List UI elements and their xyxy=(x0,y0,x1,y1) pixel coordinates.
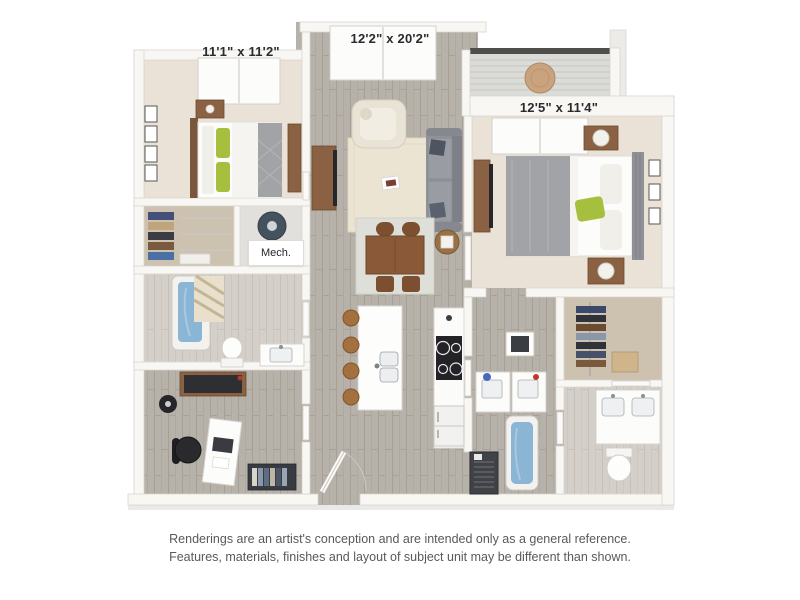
sofa xyxy=(426,128,462,232)
bedroom2-lamp-1 xyxy=(593,130,609,146)
bath1-toilet-tank xyxy=(221,358,243,367)
bedroom1-green-pillow-1 xyxy=(216,128,230,158)
wall-bedroom2-bottom-b xyxy=(526,288,674,297)
office-bookshelf xyxy=(248,464,296,490)
bath1-toilet xyxy=(222,337,242,359)
closet2-hanging-clothes xyxy=(576,306,606,367)
coffee-table-decor xyxy=(381,176,400,190)
bedroom1-green-pillow-2 xyxy=(216,162,230,192)
bath3-sink-1 xyxy=(602,398,624,416)
bedroom1-duvet xyxy=(232,123,258,197)
disclaimer: Renderings are an artist's conception an… xyxy=(0,531,800,566)
island-faucet xyxy=(375,364,380,369)
bedroom2-lamp-2 xyxy=(598,263,614,279)
bedroom1-door xyxy=(303,172,309,200)
wall-bedroom2-bottom-a xyxy=(464,288,486,297)
wall-kitchen-a xyxy=(464,297,472,356)
wall-hall-left-c xyxy=(302,442,310,494)
bath3-faucet-1 xyxy=(611,394,615,398)
bath2-red-bottle xyxy=(533,374,539,380)
bath1-faucet xyxy=(279,345,283,349)
bedroom-1-dimensions-label: 11'1" x 11'2" xyxy=(156,44,326,60)
closet2-door xyxy=(612,381,650,386)
bedroom2-tv xyxy=(489,164,493,228)
dining-chair-3 xyxy=(376,276,394,292)
wall-kitchen-b xyxy=(464,398,472,452)
closet1-bin xyxy=(180,254,210,264)
television xyxy=(333,150,337,206)
bath2-sink-2 xyxy=(518,380,538,398)
bath1-sink xyxy=(270,348,292,362)
armchair-pillow xyxy=(360,108,372,120)
floor-plan-rendering xyxy=(0,0,800,600)
water-heater-cap xyxy=(267,221,277,231)
laundry-detergent xyxy=(474,454,482,460)
office-papers xyxy=(212,457,229,469)
wall-closet2-bath3-b xyxy=(650,380,662,387)
dining-chair-1 xyxy=(376,222,394,236)
tv-console xyxy=(312,146,336,210)
bedroom2-bed xyxy=(506,152,644,260)
closet1-hanging-clothes xyxy=(148,212,174,260)
bedroom1-bed-headboard xyxy=(190,118,198,198)
office-laptop xyxy=(212,437,234,453)
bath1-door xyxy=(303,302,309,336)
wall-right-outer xyxy=(662,96,674,505)
office-turntable-center xyxy=(165,401,171,407)
wall-hall-closet2-a xyxy=(556,297,564,410)
sofa-backrest xyxy=(452,136,462,222)
bedroom2-blanket xyxy=(506,156,570,256)
sofa-pillow-2 xyxy=(429,202,446,219)
bedroom2-media-console xyxy=(474,160,490,232)
office-console-top xyxy=(184,375,242,393)
bath3-sink-2 xyxy=(632,398,654,416)
bath3-door xyxy=(557,412,563,444)
bath3-faucet-2 xyxy=(641,394,645,398)
dining-chair-4 xyxy=(402,276,420,292)
office-door xyxy=(303,406,309,440)
mech-room xyxy=(258,212,286,240)
bedroom1-white-pillows xyxy=(202,126,214,194)
wall-left-outer xyxy=(134,50,144,505)
office-console-decor xyxy=(238,376,243,381)
office-chair xyxy=(175,437,201,463)
island-sink-basin-2 xyxy=(380,368,398,382)
refrigerator xyxy=(434,406,464,446)
balcony-right-wall xyxy=(610,48,620,100)
bedroom2-door xyxy=(465,236,471,280)
bath2-cabinet-door xyxy=(511,336,529,352)
bath2-door xyxy=(465,360,471,396)
living-room-dimensions-label: 12'2" x 20'2" xyxy=(305,31,475,47)
balcony-left-wall xyxy=(462,50,470,116)
bedroom-2-dimensions-label: 12'5" x 11'4" xyxy=(474,100,644,116)
bedroom2-white-pillow-1 xyxy=(600,164,622,204)
bedroom2-headboard xyxy=(632,152,644,260)
mech-room-label: Mech. xyxy=(248,240,304,266)
bedroom1-lamp xyxy=(206,105,214,113)
bedroom1-dresser xyxy=(288,124,301,192)
side-table-tray xyxy=(441,236,453,248)
armchair xyxy=(352,100,406,148)
bedroom1-bed xyxy=(190,118,282,198)
bedroom2-wall-art xyxy=(649,160,660,224)
closet2-storage-box xyxy=(612,352,638,372)
sofa-pillow-1 xyxy=(429,139,446,156)
disclaimer-line-2: Features, materials, finishes and layout… xyxy=(0,549,800,567)
disclaimer-line-1: Renderings are an artist's conception an… xyxy=(0,531,800,549)
wall-hall-closet2-b xyxy=(556,446,564,494)
bath3-toilet xyxy=(607,455,631,481)
wall-bedroom1-bottom xyxy=(134,198,310,206)
counter-item xyxy=(446,315,452,321)
plan-shadow xyxy=(128,505,674,510)
balcony-railing xyxy=(470,48,610,54)
dining-chair-2 xyxy=(402,222,420,236)
laundry-unit xyxy=(470,452,498,494)
wall-closet1-mech xyxy=(234,206,240,266)
wall-living-bedroom2 xyxy=(464,116,472,232)
bath1-shower-curtain xyxy=(194,276,224,322)
floor-plan-page: 11'1" x 11'2" 12'2" x 20'2" 12'5" x 11'4… xyxy=(0,0,800,600)
wall-bottom-right xyxy=(360,494,674,505)
wall-bottom-left xyxy=(128,494,318,505)
bath2-sink-1 xyxy=(482,380,502,398)
wall-closet1-bath1 xyxy=(134,266,310,274)
bath2-blue-bowl xyxy=(483,373,491,381)
bedroom1-blanket xyxy=(258,123,282,197)
island-sink-basin-1 xyxy=(380,352,398,366)
bath2-tub-water xyxy=(511,422,533,484)
wall-closet2-bath3-a xyxy=(556,380,612,387)
balcony-table xyxy=(525,63,555,93)
